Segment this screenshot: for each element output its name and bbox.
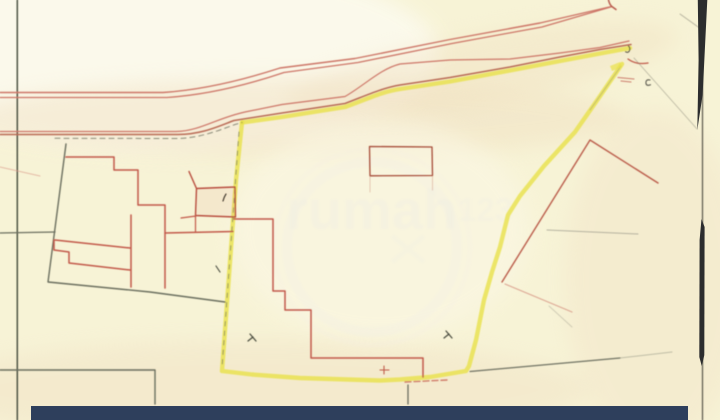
svg-text:rumah: rumah [286,178,457,241]
